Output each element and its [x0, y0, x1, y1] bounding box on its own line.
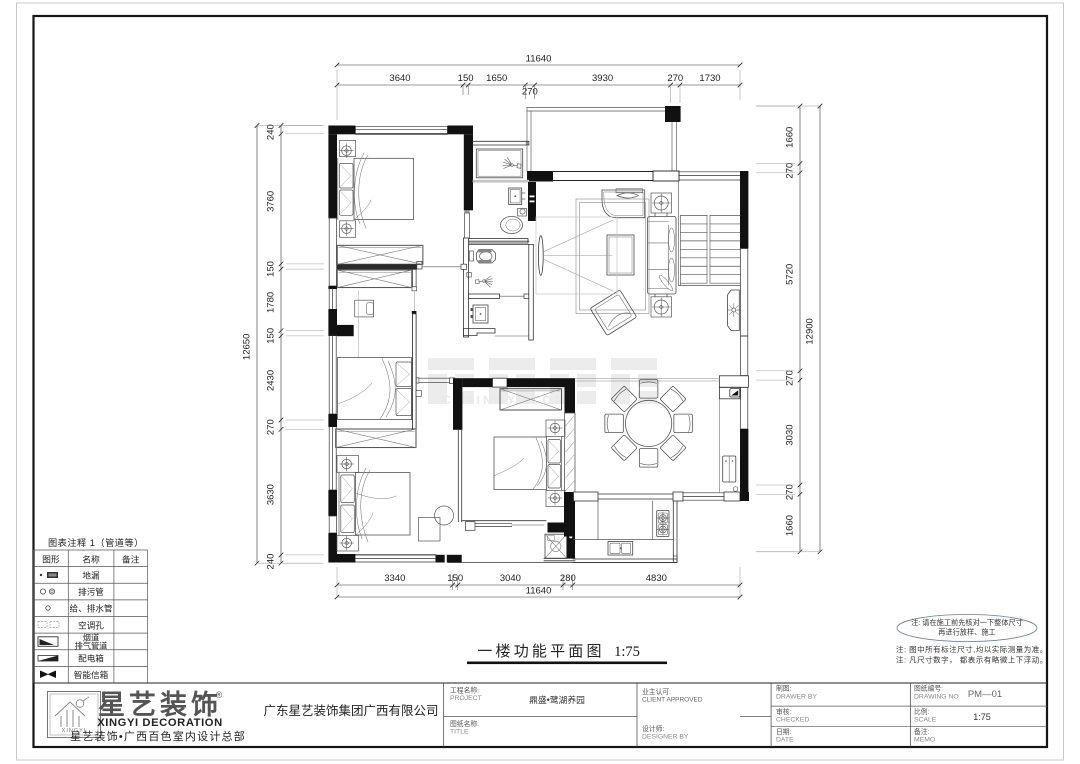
svg-text:11640: 11640 — [526, 54, 552, 65]
svg-text:150: 150 — [447, 573, 463, 584]
svg-text:MEMO: MEMO — [914, 737, 935, 744]
svg-text:图纸名称:: 图纸名称: — [450, 719, 479, 728]
svg-text:3340: 3340 — [384, 573, 405, 584]
svg-text:日期:: 日期: — [776, 728, 792, 736]
svg-text:备注:: 备注: — [914, 727, 930, 736]
svg-text:一楼功能平面图: 一楼功能平面图 — [477, 643, 604, 660]
svg-text:鼎盛•鹭湖养园: 鼎盛•鹭湖养园 — [529, 694, 585, 705]
svg-text:再进行放样、施工: 再进行放样、施工 — [938, 628, 996, 637]
svg-text:设计师:: 设计师: — [642, 724, 664, 733]
svg-text:图纸编号:: 图纸编号: — [914, 684, 943, 693]
svg-text:DRAWER BY: DRAWER BY — [776, 694, 817, 701]
svg-text:1780: 1780 — [266, 292, 277, 313]
svg-text:1:75: 1:75 — [614, 644, 640, 660]
svg-text:150: 150 — [266, 261, 277, 277]
svg-text:2430: 2430 — [266, 370, 277, 391]
svg-text:星艺装饰: 星艺装饰 — [98, 690, 222, 720]
svg-text:DATE: DATE — [776, 737, 794, 744]
svg-text:1660: 1660 — [785, 515, 796, 536]
svg-text:广东星艺装饰集团广西有限公司: 广东星艺装饰集团广西有限公司 — [263, 703, 438, 718]
svg-text:150: 150 — [458, 73, 474, 84]
svg-text:4830: 4830 — [646, 573, 667, 584]
svg-text:®: ® — [216, 690, 223, 700]
svg-text:制图:: 制图: — [776, 684, 792, 693]
svg-text:1660: 1660 — [785, 127, 796, 148]
svg-text:业主认可:: 业主认可: — [642, 687, 671, 696]
svg-text:注: 请在施工前先核对一下整体尺寸: 注: 请在施工前先核对一下整体尺寸 — [911, 618, 1023, 627]
svg-text:地漏: 地漏 — [82, 569, 100, 580]
svg-text:PM—01: PM—01 — [968, 689, 1002, 700]
svg-text:3930: 3930 — [592, 73, 613, 84]
svg-text:注: 图中所有标注尺寸,均以实际测量为准。: 注: 图中所有标注尺寸,均以实际测量为准。 — [896, 644, 1048, 654]
svg-text:审核:: 审核: — [776, 707, 792, 716]
svg-text:空调孔: 空调孔 — [78, 619, 104, 630]
svg-text:DESIGNER BY: DESIGNER BY — [642, 734, 689, 741]
svg-text:3760: 3760 — [266, 191, 277, 212]
svg-text:3640: 3640 — [389, 73, 410, 84]
svg-text:图表注释 1（管道等）: 图表注释 1（管道等） — [48, 537, 144, 548]
svg-text:TITLE: TITLE — [450, 729, 469, 736]
svg-text:1730: 1730 — [699, 73, 720, 84]
svg-text:270: 270 — [785, 370, 796, 386]
svg-text:1650: 1650 — [486, 73, 507, 84]
svg-text:SCALE: SCALE — [914, 717, 937, 724]
svg-text:CLIENT APPROVED: CLIENT APPROVED — [642, 697, 703, 704]
svg-text:270: 270 — [785, 484, 796, 500]
svg-text:240: 240 — [266, 554, 277, 570]
svg-text:给、排水管: 给、排水管 — [70, 603, 113, 614]
svg-text:PROJECT: PROJECT — [450, 695, 482, 702]
svg-text:270: 270 — [785, 163, 796, 179]
svg-text:星艺装饰•广西百色室内设计总部: 星艺装饰•广西百色室内设计总部 — [70, 729, 246, 743]
svg-text:12900: 12900 — [805, 318, 816, 344]
svg-text:工程名称:: 工程名称: — [450, 686, 479, 695]
svg-text:排气管道: 排气管道 — [75, 640, 108, 650]
svg-text:240: 240 — [266, 124, 277, 140]
svg-text:3030: 3030 — [785, 424, 796, 445]
svg-text:DRAWING NO: DRAWING NO — [914, 694, 959, 701]
svg-text:11640: 11640 — [526, 586, 552, 597]
svg-text:1:75: 1:75 — [973, 712, 991, 722]
svg-text:280: 280 — [560, 573, 576, 584]
svg-text:图形: 图形 — [42, 555, 60, 565]
svg-text:配电箱: 配电箱 — [78, 653, 104, 664]
svg-text:备注: 备注 — [122, 554, 140, 565]
svg-text:XINGYI DECORATION: XINGYI DECORATION — [97, 717, 223, 729]
svg-text:排污管: 排污管 — [78, 586, 104, 597]
svg-text:名称: 名称 — [82, 554, 100, 565]
svg-text:5720: 5720 — [785, 264, 796, 285]
svg-text:比例:: 比例: — [914, 707, 930, 716]
svg-text:CHECKED: CHECKED — [776, 717, 809, 724]
svg-text:12650: 12650 — [242, 334, 253, 360]
svg-text:注: 凡尺寸数字， 都表示有略微上下浮动。: 注: 凡尺寸数字， 都表示有略微上下浮动。 — [896, 655, 1048, 665]
svg-text:150: 150 — [266, 328, 277, 344]
svg-text:270: 270 — [266, 419, 277, 435]
svg-text:270: 270 — [667, 73, 683, 84]
svg-text:270: 270 — [522, 87, 538, 98]
svg-text:智能信箱: 智能信箱 — [74, 669, 109, 680]
svg-text:3630: 3630 — [266, 484, 277, 505]
svg-text:3040: 3040 — [500, 573, 521, 584]
